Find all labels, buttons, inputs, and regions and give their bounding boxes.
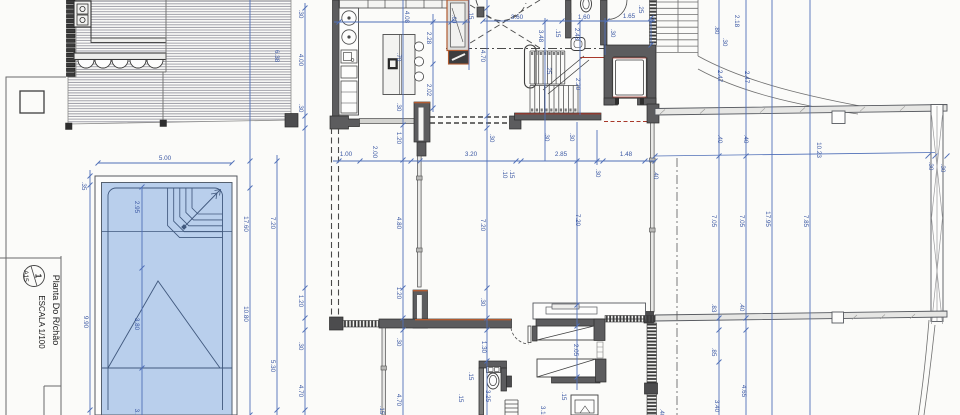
svg-text:3.60: 3.60 — [511, 14, 524, 21]
svg-text:2.20: 2.20 — [574, 78, 581, 91]
svg-text:3.10: 3.10 — [539, 406, 546, 415]
svg-text:7.20: 7.20 — [479, 219, 486, 232]
svg-text:.15: .15 — [560, 392, 567, 401]
svg-text:7.85: 7.85 — [802, 215, 809, 228]
svg-text:.15: .15 — [378, 406, 385, 415]
svg-text:.40: .40 — [738, 303, 745, 312]
svg-text:5.30: 5.30 — [269, 360, 276, 373]
svg-text:.80: .80 — [713, 26, 720, 35]
svg-text:.30: .30 — [297, 104, 304, 113]
svg-text:1.48: 1.48 — [620, 151, 633, 158]
svg-text:2.95: 2.95 — [133, 201, 140, 214]
svg-text:.30: .30 — [488, 134, 495, 143]
svg-text:.40: .40 — [658, 409, 665, 415]
svg-text:.30: .30 — [568, 133, 575, 142]
svg-text:.30: .30 — [609, 29, 616, 38]
svg-text:2.47: 2.47 — [743, 71, 750, 84]
svg-text:3.20: 3.20 — [465, 151, 478, 158]
svg-text:4.00: 4.00 — [297, 54, 304, 67]
svg-text:.35: .35 — [80, 182, 87, 191]
svg-text:17.95: 17.95 — [764, 211, 771, 227]
svg-text:7.20: 7.20 — [269, 217, 276, 230]
svg-text:3.48: 3.48 — [537, 30, 544, 43]
svg-text:2.28: 2.28 — [425, 32, 432, 45]
svg-text:1.20: 1.20 — [395, 287, 402, 300]
svg-text:2.00: 2.00 — [371, 146, 378, 159]
svg-text:17.60: 17.60 — [242, 216, 249, 232]
svg-text:.15: .15 — [508, 170, 515, 179]
svg-text:10.80: 10.80 — [242, 306, 249, 322]
svg-text:1.30: 1.30 — [480, 341, 487, 354]
svg-text:.60: .60 — [450, 15, 457, 24]
svg-text:4.70: 4.70 — [395, 394, 402, 407]
svg-text:4.70: 4.70 — [479, 50, 486, 63]
svg-text:1: 1 — [34, 274, 43, 279]
svg-text:.85: .85 — [710, 348, 717, 357]
svg-text:Planta Do R/chão: Planta Do R/chão — [51, 275, 61, 346]
svg-text:.40: .40 — [742, 135, 749, 144]
svg-text:.40: .40 — [716, 135, 723, 144]
svg-text:.40: .40 — [652, 171, 659, 180]
svg-text:.25: .25 — [637, 5, 644, 14]
svg-text:.30: .30 — [395, 338, 402, 347]
svg-text:1.20: 1.20 — [395, 132, 402, 145]
svg-text:.15: .15 — [467, 372, 474, 381]
svg-text:.15: .15 — [554, 29, 561, 38]
svg-text:.30: .30 — [297, 342, 304, 351]
svg-text:3.40: 3.40 — [713, 400, 720, 413]
svg-text:.30: .30 — [927, 162, 934, 171]
svg-text:3.25: 3.25 — [484, 390, 491, 403]
svg-text:.15: .15 — [467, 11, 474, 20]
svg-text:5.00: 5.00 — [159, 155, 172, 162]
svg-text:4.65: 4.65 — [740, 385, 747, 398]
svg-text:6.38: 6.38 — [273, 50, 280, 63]
svg-text:A15: A15 — [22, 270, 29, 282]
svg-text:7.20: 7.20 — [574, 214, 581, 227]
svg-text:1.60: 1.60 — [578, 14, 591, 21]
svg-text:.30: .30 — [479, 298, 486, 307]
svg-text:4.80: 4.80 — [395, 217, 402, 230]
svg-text:.30: .30 — [297, 10, 304, 19]
svg-text:1.65: 1.65 — [623, 13, 636, 20]
svg-text:.30: .30 — [395, 103, 402, 112]
svg-text:.30: .30 — [721, 38, 728, 47]
svg-text:.30: .30 — [543, 133, 550, 142]
svg-text:2.18: 2.18 — [733, 15, 740, 28]
svg-text:7.05: 7.05 — [710, 215, 717, 228]
svg-text:.30: .30 — [594, 169, 601, 178]
svg-text:9.90: 9.90 — [82, 316, 89, 329]
svg-text:4.70: 4.70 — [297, 385, 304, 398]
svg-text:.10: .10 — [501, 170, 508, 179]
svg-text:10.23: 10.23 — [815, 142, 822, 158]
svg-text:ESCALA 1/100: ESCALA 1/100 — [37, 295, 46, 349]
svg-text:.15: .15 — [457, 394, 464, 403]
svg-text:.70: .70 — [395, 53, 402, 62]
svg-text:4.08: 4.08 — [403, 11, 410, 24]
svg-text:2.85: 2.85 — [555, 151, 568, 158]
svg-text:1.00: 1.00 — [340, 151, 353, 158]
svg-text:.25: .25 — [545, 66, 552, 75]
svg-text:2.05: 2.05 — [572, 344, 579, 357]
svg-text:1.20: 1.20 — [297, 295, 304, 308]
svg-text:.83: .83 — [710, 304, 717, 313]
svg-text:3.80: 3.80 — [133, 318, 140, 331]
svg-text:2.47: 2.47 — [716, 70, 723, 83]
svg-text:3.1: 3.1 — [133, 409, 140, 415]
svg-text:2.43: 2.43 — [573, 28, 580, 41]
svg-text:7.05: 7.05 — [738, 215, 745, 228]
svg-text:.30: .30 — [939, 164, 946, 173]
svg-text:2.02: 2.02 — [425, 84, 432, 97]
